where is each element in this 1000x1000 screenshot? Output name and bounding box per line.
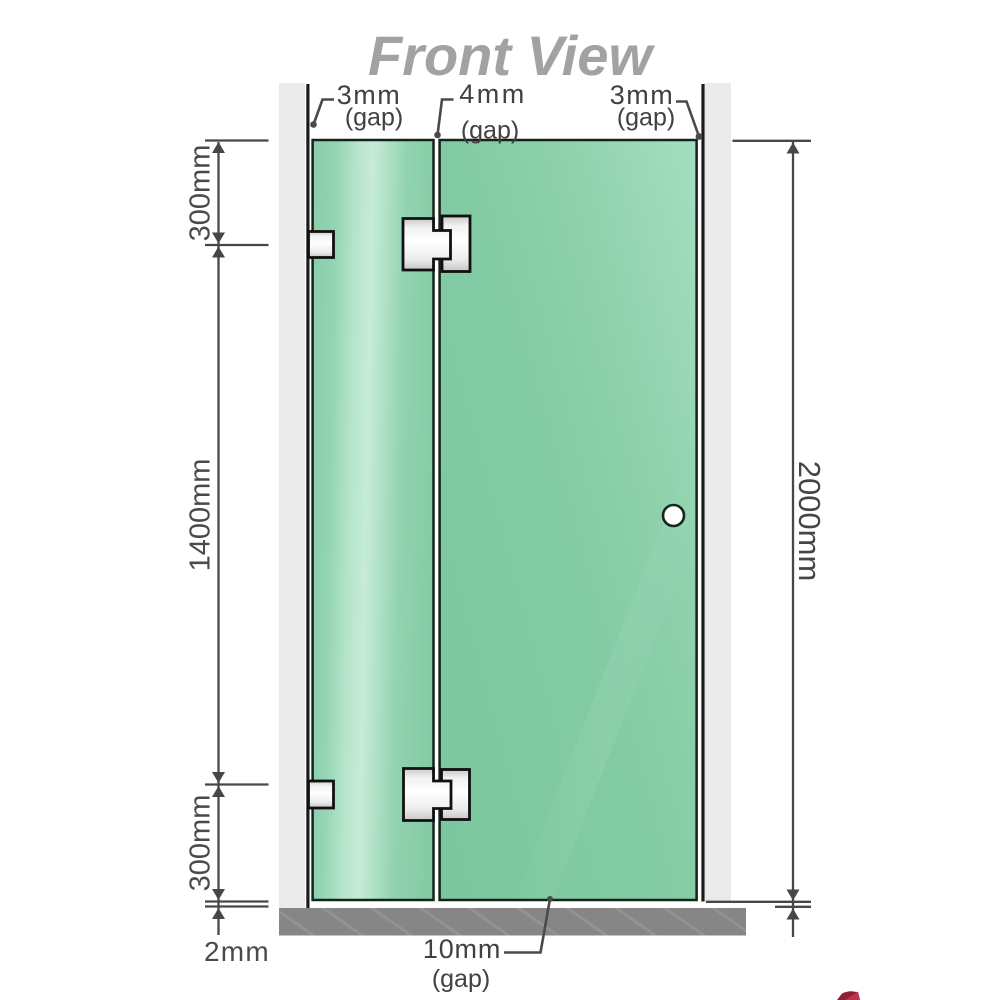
svg-text:10mm: 10mm [423, 934, 501, 964]
svg-text:(gap): (gap) [461, 117, 519, 145]
svg-text:(gap): (gap) [345, 104, 403, 132]
svg-text:(gap): (gap) [432, 965, 490, 993]
svg-text:300mm: 300mm [185, 795, 217, 892]
svg-text:1400mm: 1400mm [185, 459, 217, 572]
svg-text:4mm: 4mm [459, 79, 527, 109]
svg-text:Front View: Front View [368, 24, 655, 87]
svg-text:2000mm: 2000mm [792, 461, 827, 582]
svg-text:(gap): (gap) [617, 104, 675, 132]
svg-text:300mm: 300mm [185, 145, 217, 242]
svg-text:2mm: 2mm [204, 936, 270, 967]
